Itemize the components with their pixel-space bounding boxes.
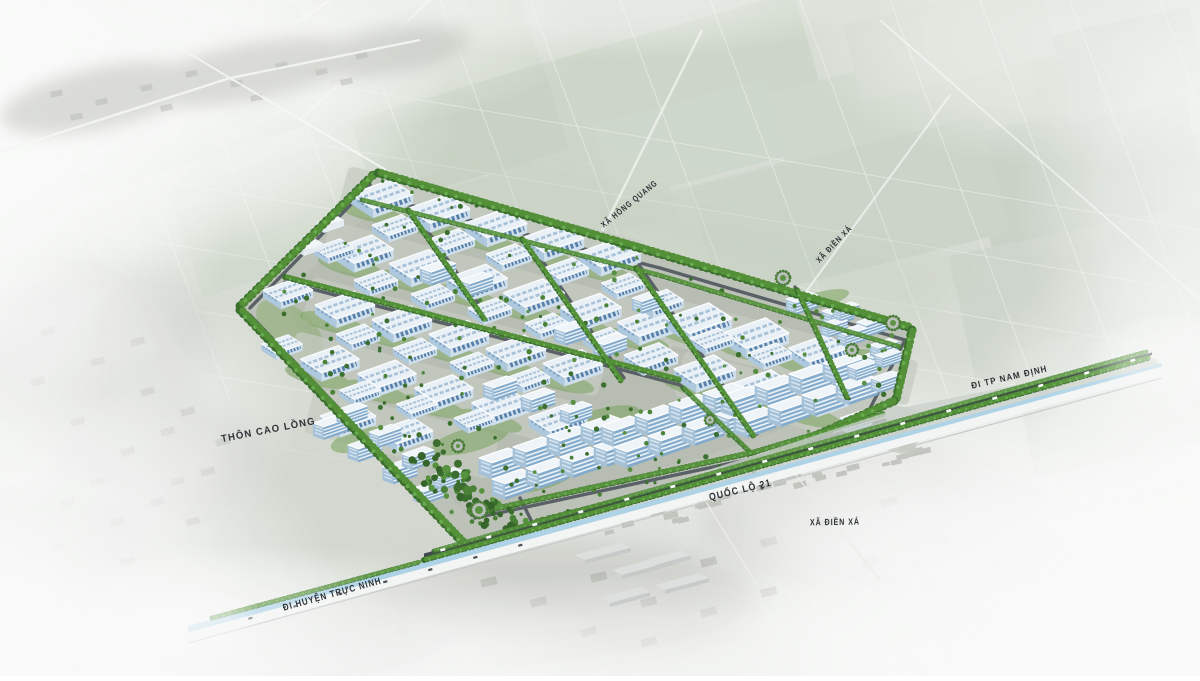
svg-text:XÃ ĐIỀN XÁ: XÃ ĐIỀN XÁ [810,517,860,528]
